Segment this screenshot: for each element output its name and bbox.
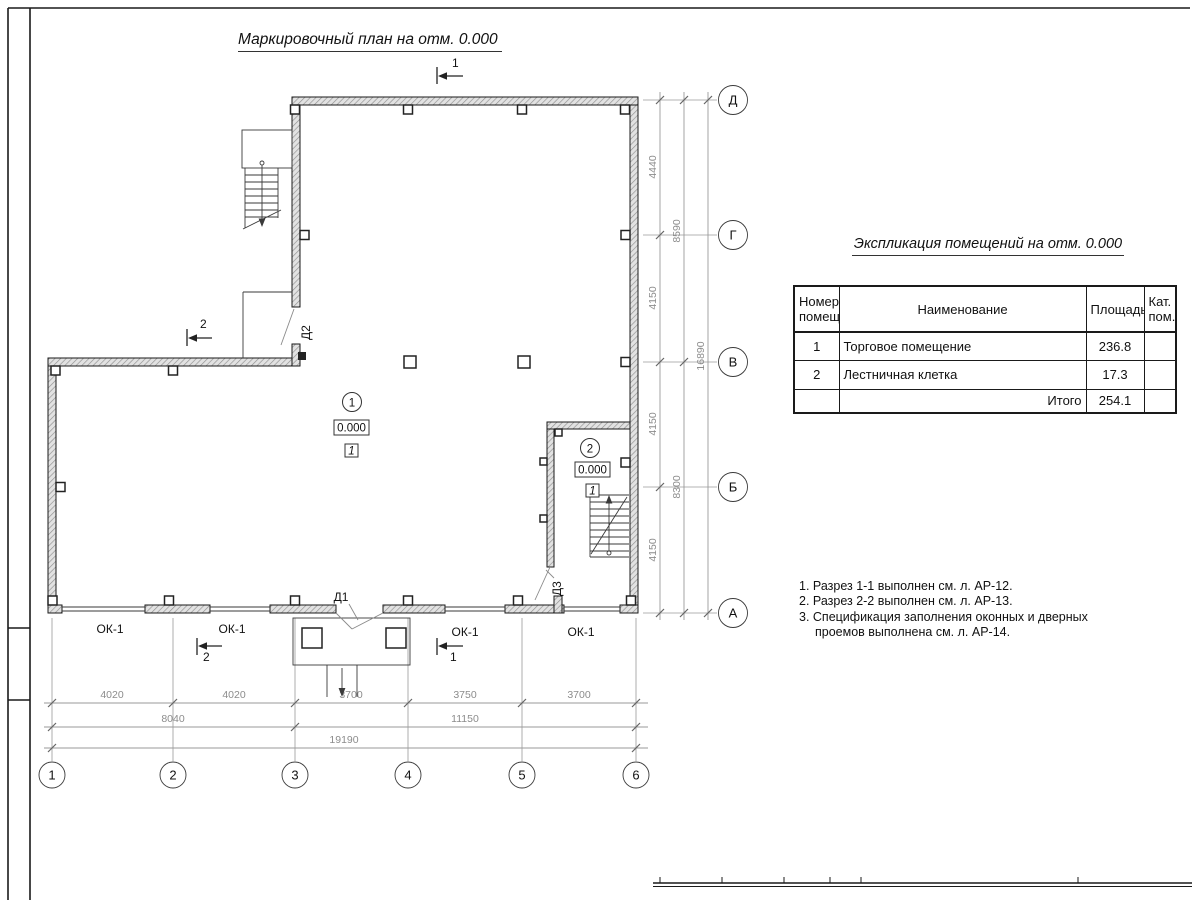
wall-bottom-pier [270,605,336,613]
section-label: 1 [450,650,457,664]
wall-right [630,105,638,613]
window-label: ОК-1 [97,622,124,636]
room-marker-1: 1 0.000 1 [334,393,369,458]
wall-left [48,366,56,613]
section-label: 2 [203,650,210,664]
table-header-row: Номер помещ. Наименование Площадь Кат. п… [794,286,1176,332]
cell-num: 2 [794,360,839,389]
dim-label: 3700 [567,689,591,701]
cell-num: 1 [794,332,839,360]
wall-upper-left [292,105,300,307]
dim-label: 19190 [329,734,358,746]
wall-bottom-pier [145,605,210,613]
dimension-chain-bottom: 4020 4020 3700 3750 3700 8040 11150 1919… [44,689,648,752]
wall-d3-jamb [554,596,562,613]
plan-title: Маркировочный план на отм. 0.000 [238,31,502,49]
header-name: Наименование [839,286,1086,332]
axis-label-row: В [729,355,738,370]
cell-name: Лестничная клетка [839,360,1086,389]
window-label: ОК-1 [568,625,595,639]
wall-mid-horizontal [48,358,292,366]
explication-title: Экспликация помещений на отм. 0.000 [800,236,1176,252]
dim-label: 8040 [161,713,185,725]
dim-label: 4150 [647,538,659,562]
door-label-d1: Д1 [334,590,349,604]
axis-label-col: 3 [291,768,298,783]
table-row: 2 Лестничная клетка 17.3 [794,360,1176,389]
note-line: проемов выполнена см. л. АР-14. [799,625,1199,640]
interior-stair [590,495,629,557]
axis-label-row: Д [729,93,738,108]
axis-circles: Д Г В Б А 1 2 3 4 5 6 [39,86,748,789]
section-label: 2 [200,317,207,331]
notes: 1. Разрез 1-1 выполнен см. л. АР-12. 2. … [799,579,1199,641]
note-line: 2. Разрез 2-2 выполнен см. л. АР-13. [799,594,1199,609]
door-d2-leaf [281,309,294,345]
grid-axis-lines [52,100,717,761]
axis-label-row: Г [729,228,736,243]
room-elevation: 0.000 [337,423,366,435]
cell-cat [1144,332,1176,360]
axis-label-row: А [729,606,738,621]
exterior-stair [242,130,292,229]
axis-label-col: 1 [48,768,55,783]
note-line: 1. Разрез 1-1 выполнен см. л. АР-12. [799,579,1199,594]
wall-stairwell-left [547,429,554,567]
dim-label: 11150 [451,713,479,725]
sheet-frame [8,8,1192,900]
dimension-chain-right: 4440 4150 4150 4150 8590 8300 16890 [647,92,712,620]
dim-label: 3750 [453,689,477,701]
cell-area: 17.3 [1086,360,1144,389]
header-cat: Кат. пом. [1144,286,1176,332]
section-mark-2-top: 2 [187,317,212,346]
header-area: Площадь [1086,286,1144,332]
dim-label: 8300 [671,475,683,499]
room-number: 1 [349,398,355,410]
dim-label: 4150 [647,412,659,436]
header-num: Номер помещ. [794,286,839,332]
entrance-porch [293,604,410,697]
window-label: ОК-1 [452,625,479,639]
window-label: ОК-1 [219,622,246,636]
door-d1-leaf [336,613,352,629]
room-elevation: 0.000 [578,465,607,477]
wall-stairwell-top [547,422,630,429]
dim-label: 16890 [695,341,707,370]
wall-bottom-pier [48,605,62,613]
door-d1-leaf [352,613,383,629]
wall-corner-post [298,352,306,360]
door-label-d2: Д2 [299,325,313,340]
axis-label-row: Б [729,480,738,495]
free-column [518,356,530,368]
cell-total-label: Итого [839,389,1086,413]
section-mark-1-top: 1 [437,56,463,84]
door-label-d3: Д3 [550,581,564,596]
free-column [404,356,416,368]
explication-table: Номер помещ. Наименование Площадь Кат. п… [793,285,1177,414]
porch-column [302,628,322,648]
table-total-row: Итого 254.1 [794,389,1176,413]
floor-type: 1 [589,486,595,498]
dim-label: 4150 [647,286,659,310]
room-number: 2 [587,444,593,456]
room-marker-2: 2 0.000 1 [575,439,610,498]
cell-cat [1144,360,1176,389]
wall-top [292,97,638,105]
wall-bottom-pier [383,605,445,613]
section-mark-1-bottom: 1 [437,638,463,664]
vestibule-walls [243,292,292,358]
dim-label: 4020 [100,689,124,701]
axis-label-col: 5 [518,768,525,783]
doors [281,309,554,600]
walls [48,97,638,613]
cell-name: Торговое помещение [839,332,1086,360]
dim-label: 8590 [671,219,683,243]
wall-bottom-pier [620,605,638,613]
cell-cat [1144,389,1176,413]
cell-total-area: 254.1 [1086,389,1144,413]
floor-type: 1 [348,446,354,458]
dim-label: 4440 [647,155,659,179]
axis-label-col: 2 [169,768,176,783]
cell-num [794,389,839,413]
note-line: 3. Спецификация заполнения оконных и две… [799,610,1199,625]
section-mark-2-bottom: 2 [197,638,222,664]
axis-label-col: 6 [632,768,639,783]
title-block-top-edge [653,877,1192,887]
cell-area: 236.8 [1086,332,1144,360]
table-row: 1 Торговое помещение 236.8 [794,332,1176,360]
dim-label: 4020 [222,689,246,701]
porch-column [386,628,406,648]
axis-label-col: 4 [404,768,411,783]
section-label: 1 [452,56,459,70]
floor-plan-canvas: 4440 4150 4150 4150 8590 8300 16890 4020… [0,0,1200,900]
